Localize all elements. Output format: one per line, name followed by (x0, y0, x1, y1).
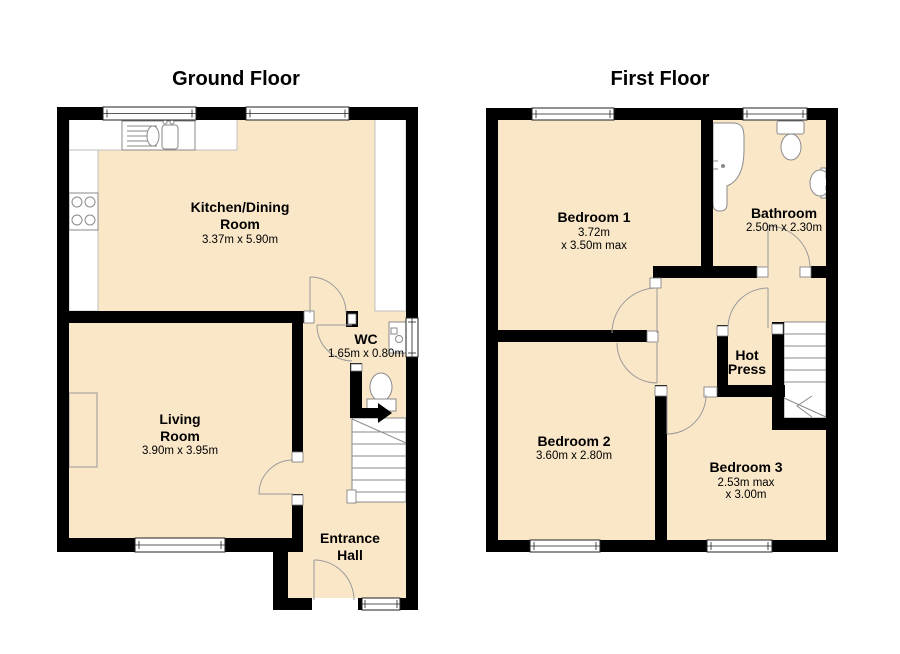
window (532, 108, 614, 120)
svg-text:Kitchen/Dining: Kitchen/Dining (191, 199, 290, 215)
window (135, 538, 225, 552)
door-jamb (655, 386, 667, 396)
svg-text:1.65m x 0.80m: 1.65m x 0.80m (328, 348, 404, 360)
svg-text:Bedroom 3: Bedroom 3 (709, 459, 782, 475)
kitchen-counter-right (375, 119, 406, 311)
svg-text:Room: Room (220, 216, 260, 232)
window (530, 540, 600, 552)
window (362, 598, 400, 610)
wall (811, 266, 826, 278)
door-jamb (351, 364, 362, 371)
window (743, 108, 807, 120)
fireplace (69, 393, 97, 467)
bathroom-label: Bathroom 2.50m x 2.30m (746, 205, 822, 234)
door-jamb (650, 278, 661, 288)
wall (772, 418, 838, 430)
svg-text:x 3.50m max: x 3.50m max (561, 240, 627, 252)
svg-text:3.72m: 3.72m (578, 227, 610, 239)
door-jamb (292, 452, 303, 462)
floorplan-canvas: Ground Floor Kitchen/Dining Room 3.37m x… (0, 0, 900, 654)
svg-text:3.37m x 5.90m: 3.37m x 5.90m (202, 234, 278, 246)
svg-text:3.90m x 3.95m: 3.90m x 3.95m (142, 445, 218, 457)
door-jamb (757, 267, 768, 277)
staircase (347, 418, 406, 503)
wall (57, 107, 69, 552)
newel-post (347, 490, 356, 503)
bedroom2-label: Bedroom 2 3.60m x 2.80m (536, 433, 612, 462)
first-floor-plan: First Floor Bedroom 1 3.72m x 3.50m max … (486, 68, 838, 552)
door-jamb (304, 311, 314, 323)
svg-text:3.60m x 2.80m: 3.60m x 2.80m (536, 450, 612, 462)
ground-floor-plan: Ground Floor Kitchen/Dining Room 3.37m x… (57, 68, 418, 610)
svg-text:2.50m x 2.30m: 2.50m x 2.30m (746, 222, 822, 234)
door-jamb (772, 324, 783, 334)
front-door-opening (312, 598, 358, 610)
svg-text:2.53m max: 2.53m max (718, 477, 775, 489)
svg-text:x 3.00m: x 3.00m (726, 489, 767, 501)
wall (292, 311, 303, 455)
svg-text:Hall: Hall (337, 547, 363, 563)
svg-text:Bedroom 2: Bedroom 2 (537, 433, 610, 449)
wall (350, 408, 378, 418)
window (707, 540, 772, 552)
svg-text:Room: Room (160, 428, 200, 444)
svg-text:Bedroom 1: Bedroom 1 (557, 209, 630, 225)
wall (655, 385, 667, 540)
wall (772, 322, 784, 422)
window (246, 107, 349, 120)
door-jamb (647, 331, 658, 342)
wall (497, 330, 647, 342)
first-floor-title: First Floor (611, 68, 710, 90)
door-jamb (348, 314, 356, 324)
ground-floor-title: Ground Floor (172, 68, 300, 90)
wall (701, 120, 713, 266)
window (103, 107, 196, 120)
floorplan-page: Ground Floor Kitchen/Dining Room 3.37m x… (0, 0, 900, 654)
window (406, 318, 418, 357)
wall (826, 108, 838, 552)
hob-icon (69, 193, 98, 230)
wall (653, 266, 757, 278)
svg-text:Press: Press (728, 361, 766, 377)
wall (406, 107, 418, 610)
svg-text:Living: Living (159, 411, 200, 427)
door-jamb (292, 495, 303, 505)
staircase (784, 322, 826, 418)
svg-text:Entrance: Entrance (320, 530, 380, 546)
door-jamb (717, 326, 728, 336)
wall (486, 108, 498, 552)
svg-text:Bathroom: Bathroom (751, 205, 817, 221)
kitchen-sink-icon (122, 120, 195, 150)
svg-text:WC: WC (354, 331, 377, 347)
door-jamb (800, 267, 811, 277)
wall (57, 311, 304, 323)
